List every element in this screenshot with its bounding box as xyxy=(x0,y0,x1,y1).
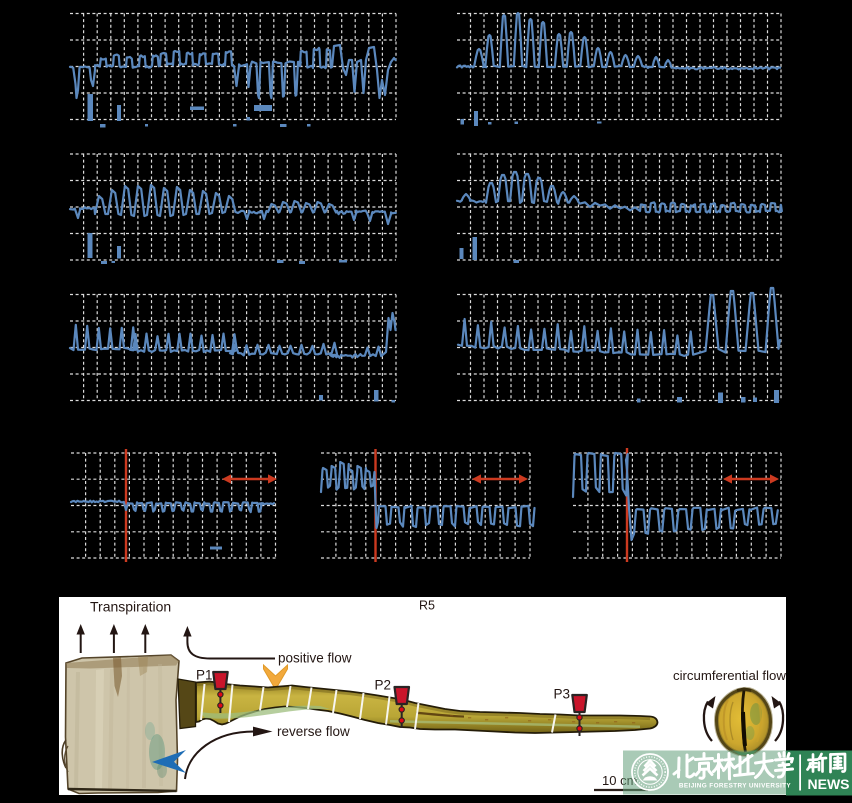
svg-text:reverse flow: reverse flow xyxy=(277,724,350,739)
svg-text:Transpiration: Transpiration xyxy=(90,599,171,615)
svg-text:positive flow: positive flow xyxy=(278,651,352,666)
svg-text:circumferential flow: circumferential flow xyxy=(673,668,786,683)
svg-text:BEIJING FORESTRY UNIVERSITY: BEIJING FORESTRY UNIVERSITY xyxy=(679,783,792,790)
svg-text:R5: R5 xyxy=(419,599,435,613)
svg-text:P3: P3 xyxy=(554,687,571,702)
svg-text:P1: P1 xyxy=(196,668,213,683)
svg-text:P2: P2 xyxy=(375,678,392,693)
svg-text:NEWS: NEWS xyxy=(808,776,850,792)
